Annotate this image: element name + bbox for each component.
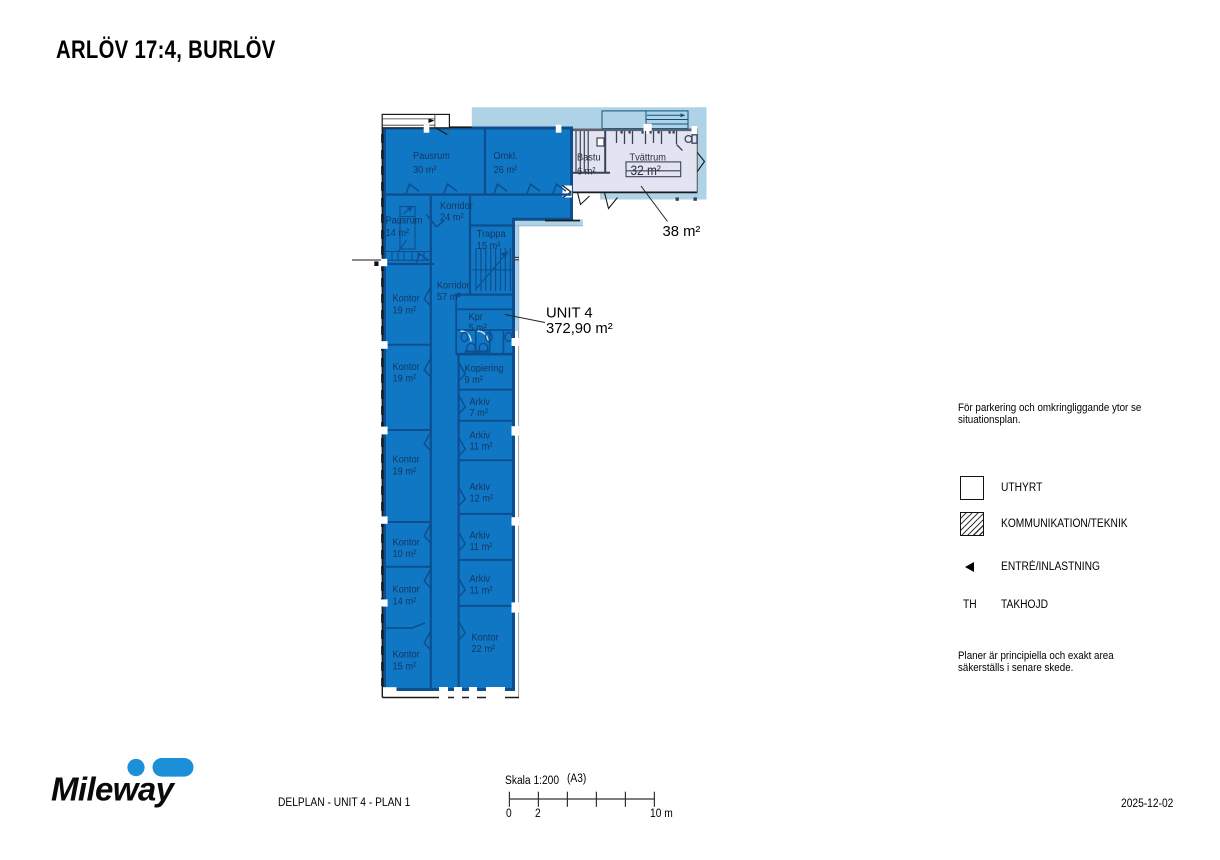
- svg-text:12 m²: 12 m²: [469, 493, 493, 505]
- svg-text:Arkiv: Arkiv: [469, 430, 490, 442]
- svg-text:30 m²: 30 m²: [413, 165, 437, 177]
- svg-text:14 m²: 14 m²: [386, 227, 410, 239]
- svg-text:Arkiv: Arkiv: [469, 573, 490, 585]
- svg-text:11 m²: 11 m²: [469, 541, 493, 553]
- svg-text:Kontor: Kontor: [392, 649, 420, 661]
- svg-text:Korridor: Korridor: [440, 200, 473, 212]
- svg-text:11 m²: 11 m²: [469, 585, 493, 597]
- svg-text:UNIT 4: UNIT 4: [546, 306, 593, 322]
- svg-text:11 m²: 11 m²: [469, 441, 493, 453]
- svg-text:15 m²: 15 m²: [477, 240, 501, 252]
- svg-text:7 m²: 7 m²: [469, 407, 488, 419]
- svg-text:19 m²: 19 m²: [392, 466, 416, 478]
- svg-text:Kontor: Kontor: [472, 632, 500, 644]
- svg-text:38 m²: 38 m²: [663, 224, 701, 240]
- svg-text:Arkiv: Arkiv: [469, 530, 490, 542]
- svg-text:26 m²: 26 m²: [494, 165, 518, 177]
- svg-text:Kontor: Kontor: [392, 361, 420, 373]
- svg-text:372,90 m²: 372,90 m²: [546, 321, 613, 337]
- svg-text:Trappa: Trappa: [477, 229, 506, 241]
- svg-text:19 m²: 19 m²: [392, 373, 416, 385]
- svg-text:Kopiering: Kopiering: [464, 363, 503, 375]
- svg-text:14 m²: 14 m²: [392, 596, 416, 608]
- svg-text:24 m²: 24 m²: [440, 212, 464, 224]
- svg-text:Kontor: Kontor: [392, 454, 420, 466]
- svg-text:6 m²: 6 m²: [577, 166, 596, 178]
- svg-text:Bastu: Bastu: [577, 152, 601, 164]
- svg-text:Korridor: Korridor: [437, 280, 470, 292]
- svg-text:9 m²: 9 m²: [464, 374, 483, 386]
- svg-text:22 m²: 22 m²: [472, 644, 496, 656]
- svg-text:Kontor: Kontor: [392, 584, 420, 596]
- svg-text:5 m²: 5 m²: [469, 322, 488, 334]
- svg-text:15 m²: 15 m²: [392, 661, 416, 673]
- svg-text:Pausrum: Pausrum: [413, 151, 450, 163]
- svg-text:Mileway: Mileway: [51, 771, 176, 808]
- svg-text:Kontor: Kontor: [392, 293, 420, 305]
- svg-text:Kontor: Kontor: [392, 537, 420, 549]
- svg-text:Omkl.: Omkl.: [494, 151, 518, 163]
- svg-text:Arkiv: Arkiv: [469, 481, 490, 493]
- svg-text:57 m²: 57 m²: [437, 292, 461, 304]
- svg-text:10 m²: 10 m²: [392, 549, 416, 561]
- svg-text:19 m²: 19 m²: [392, 305, 416, 317]
- svg-text:Pausrum: Pausrum: [386, 215, 423, 227]
- svg-text:32 m²: 32 m²: [631, 162, 661, 178]
